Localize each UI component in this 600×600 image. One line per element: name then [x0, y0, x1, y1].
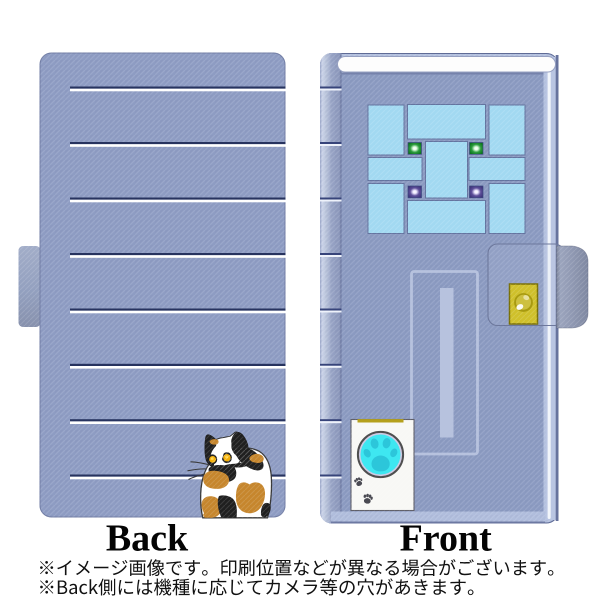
svg-text:Front: Front [400, 518, 493, 560]
svg-text:Back: Back [106, 518, 189, 560]
